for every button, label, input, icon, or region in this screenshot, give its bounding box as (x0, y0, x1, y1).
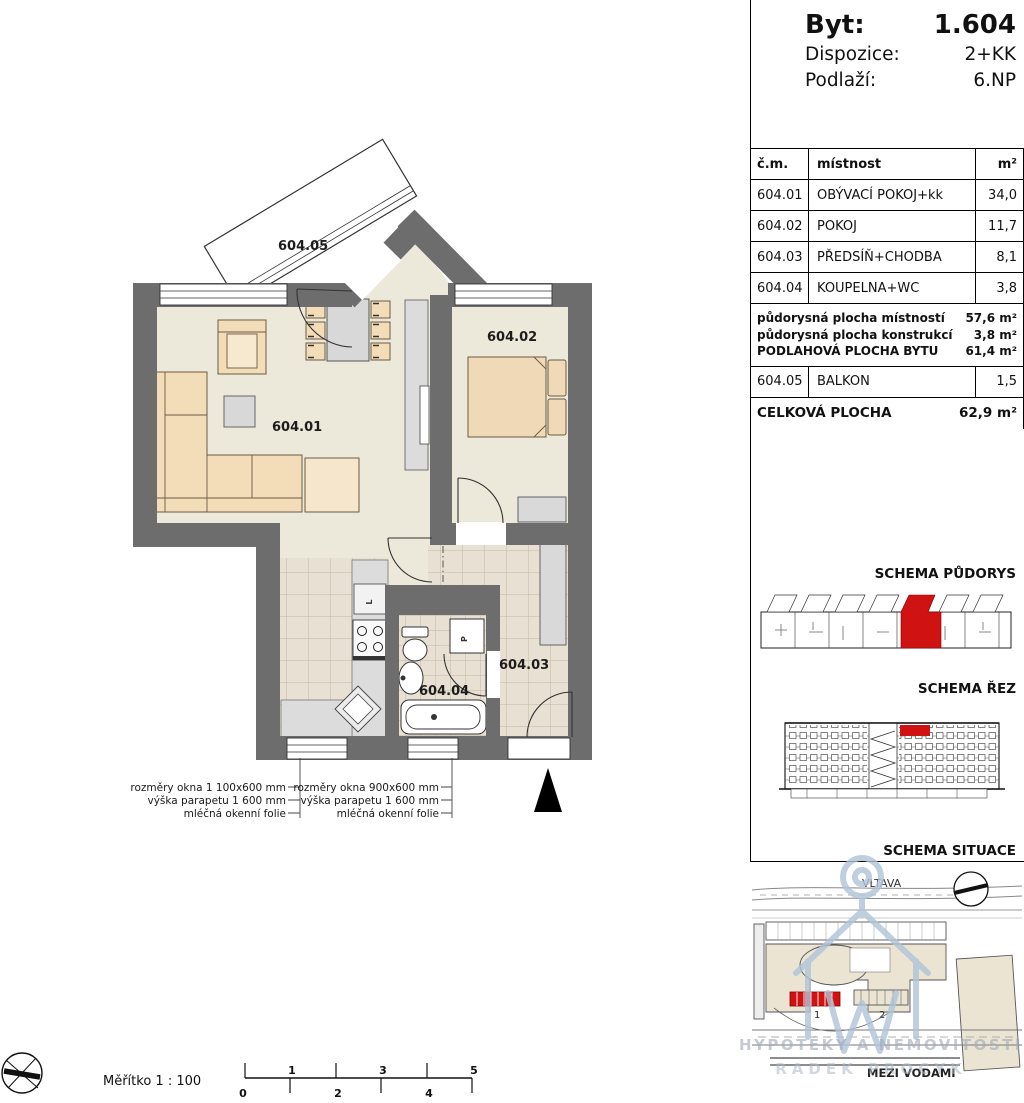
washer-label: P (460, 636, 469, 642)
room-num: 604.01 (751, 180, 809, 210)
summary-value: 3,8 m² (974, 327, 1017, 344)
table-header-row: č.m. místnost m² (751, 149, 1023, 180)
window-note-left: rozměry okna 1 100x600 mm výška parapetu… (130, 782, 286, 820)
river-label: VLTAVA (862, 877, 902, 890)
north-arrow-icon (534, 768, 562, 812)
bathroom-label: 604.04 (419, 684, 469, 699)
room-area: 1,5 (976, 367, 1023, 397)
room-num: 604.04 (751, 273, 809, 303)
room-num: 604.05 (751, 367, 809, 397)
balcony-label: 604.05 (278, 239, 328, 254)
note-text: mléčná okenní folie (337, 808, 439, 820)
room-name: BALKON (809, 367, 976, 397)
summary-line: PODLAHOVÁ PLOCHA BYTU 61,4 m² (757, 343, 1017, 360)
table-row: 604.02 POKOJ 11,7 (751, 211, 1023, 242)
room-area: 3,8 (976, 273, 1023, 303)
floor-value: 6.NP (973, 69, 1016, 92)
note-text: rozměry okna 1 100x600 mm (130, 782, 286, 794)
room-name: POKOJ (809, 211, 976, 241)
room-name: OBÝVACÍ POKOJ+kk (809, 180, 976, 210)
note-text: výška parapetu 1 600 mm (147, 795, 286, 807)
bathtub-icon (401, 700, 486, 734)
fridge-label: L (365, 599, 374, 604)
room-num: 604.03 (751, 242, 809, 272)
tick-label: 2 (334, 1087, 342, 1100)
tick-label: 1 (288, 1064, 296, 1077)
bedroom-door-opening (456, 522, 506, 545)
summary-value: 57,6 m² (965, 310, 1017, 327)
floor-label: Podlaží: (805, 69, 876, 92)
room-area: 34,0 (976, 180, 1023, 210)
unit-label: Byt: (805, 10, 865, 40)
living-room-label: 604.01 (272, 420, 322, 435)
room-name: KOUPELNA+WC (809, 273, 976, 303)
street-label: MEZI VODAMI (867, 1066, 956, 1080)
summary-label: půdorysná plocha konstrukcí (757, 327, 953, 344)
tick-label: 4 (425, 1087, 433, 1100)
area-summary: půdorysná plocha místností 57,6 m² půdor… (751, 304, 1023, 367)
scale-tick-labels: 0 1 2 3 4 5 (239, 1064, 478, 1100)
map-highlighted-building (790, 992, 840, 1006)
unit-number: 1.604 (934, 10, 1016, 40)
highlighted-floor-unit (900, 725, 930, 736)
room-num: 604.02 (751, 211, 809, 241)
note-text: mléčná okenní folie (184, 808, 286, 820)
scale-label: Měřítko 1 : 100 (103, 1074, 201, 1089)
toilet-icon (402, 627, 428, 661)
total-value: 62,9 m² (959, 405, 1017, 421)
armchair-icon (218, 320, 266, 374)
bedroom-wardrobe-icon (518, 497, 566, 522)
map-compass-icon (954, 872, 988, 906)
room-area: 11,7 (976, 211, 1023, 241)
rooms-table: č.m. místnost m² 604.01 OBÝVACÍ POKOJ+kk… (751, 148, 1024, 429)
table-row-balcony: 604.05 BALKON 1,5 (751, 367, 1023, 398)
dining-set-icon (306, 299, 390, 361)
schema-rez-label: SCHEMA ŘEZ (918, 681, 1016, 697)
unit-header: Byt: 1.604 Dispozice: 2+KK Podlaží: 6.NP (751, 0, 1024, 148)
map-building-2 (854, 990, 908, 1005)
schema-situace-map: VLTAVA (750, 862, 1024, 1103)
summary-label: PODLAHOVÁ PLOCHA BYTU (757, 343, 938, 360)
washer-icon (450, 619, 484, 653)
schema-pudorys (755, 582, 1017, 660)
schema-rez (777, 697, 1007, 803)
table-row: 604.04 KOUPELNA+WC 3,8 (751, 273, 1023, 304)
tick-label: 3 (379, 1064, 387, 1077)
table-row: 604.03 PŘEDSÍŇ+CHODBA 8,1 (751, 242, 1023, 273)
room-name: PŘEDSÍŇ+CHODBA (809, 242, 976, 272)
hall-label: 604.03 (499, 658, 549, 673)
bedroom-label: 604.02 (487, 330, 537, 345)
apartment-floor-plan: 604.05 604.01 604.02 604.03 604.04 L P r… (0, 0, 750, 1103)
note-text: výška parapetu 1 600 mm (300, 795, 439, 807)
info-panel: Byt: 1.604 Dispozice: 2+KK Podlaží: 6.NP… (750, 0, 1024, 1103)
window-note-right: rozměry okna 900x600 mm výška parapetu 1… (293, 782, 439, 820)
col-header-area: m² (976, 149, 1023, 179)
col-header-room: místnost (809, 149, 976, 179)
room-area: 8,1 (976, 242, 1023, 272)
schema-situace-label: SCHEMA SITUACE (883, 843, 1016, 859)
compass-icon (2, 1053, 42, 1093)
col-header-num: č.m. (751, 149, 809, 179)
tv-cabinet-icon (405, 300, 429, 470)
tick-label: 0 (239, 1087, 247, 1100)
layout-value: 2+KK (964, 43, 1016, 66)
summary-line: půdorysná plocha místností 57,6 m² (757, 310, 1017, 327)
floor-plan-sheet: 604.05 604.01 604.02 604.03 604.04 L P r… (0, 0, 1024, 1103)
schema-situace-box: VLTAVA (750, 861, 1024, 1103)
summary-line: půdorysná plocha konstrukcí 3,8 m² (757, 327, 1017, 344)
total-area-row: CELKOVÁ PLOCHA 62,9 m² (751, 398, 1023, 429)
stove-icon (353, 620, 387, 660)
highlighted-unit (901, 595, 941, 648)
summary-label: půdorysná plocha místností (757, 310, 945, 327)
scale-bar (245, 1063, 472, 1093)
summary-value: 61,4 m² (965, 343, 1017, 360)
coffee-table-icon (224, 396, 255, 427)
layout-label: Dispozice: (805, 43, 900, 66)
schema-pudorys-label: SCHEMA PŮDORYS (875, 566, 1016, 582)
hall-wardrobe-icon (540, 537, 566, 645)
building1-label: 1 (814, 1010, 820, 1021)
note-text: rozměry okna 900x600 mm (293, 782, 439, 794)
tick-label: 5 (470, 1064, 478, 1077)
total-label: CELKOVÁ PLOCHA (757, 405, 892, 421)
table-row: 604.01 OBÝVACÍ POKOJ+kk 34,0 (751, 180, 1023, 211)
